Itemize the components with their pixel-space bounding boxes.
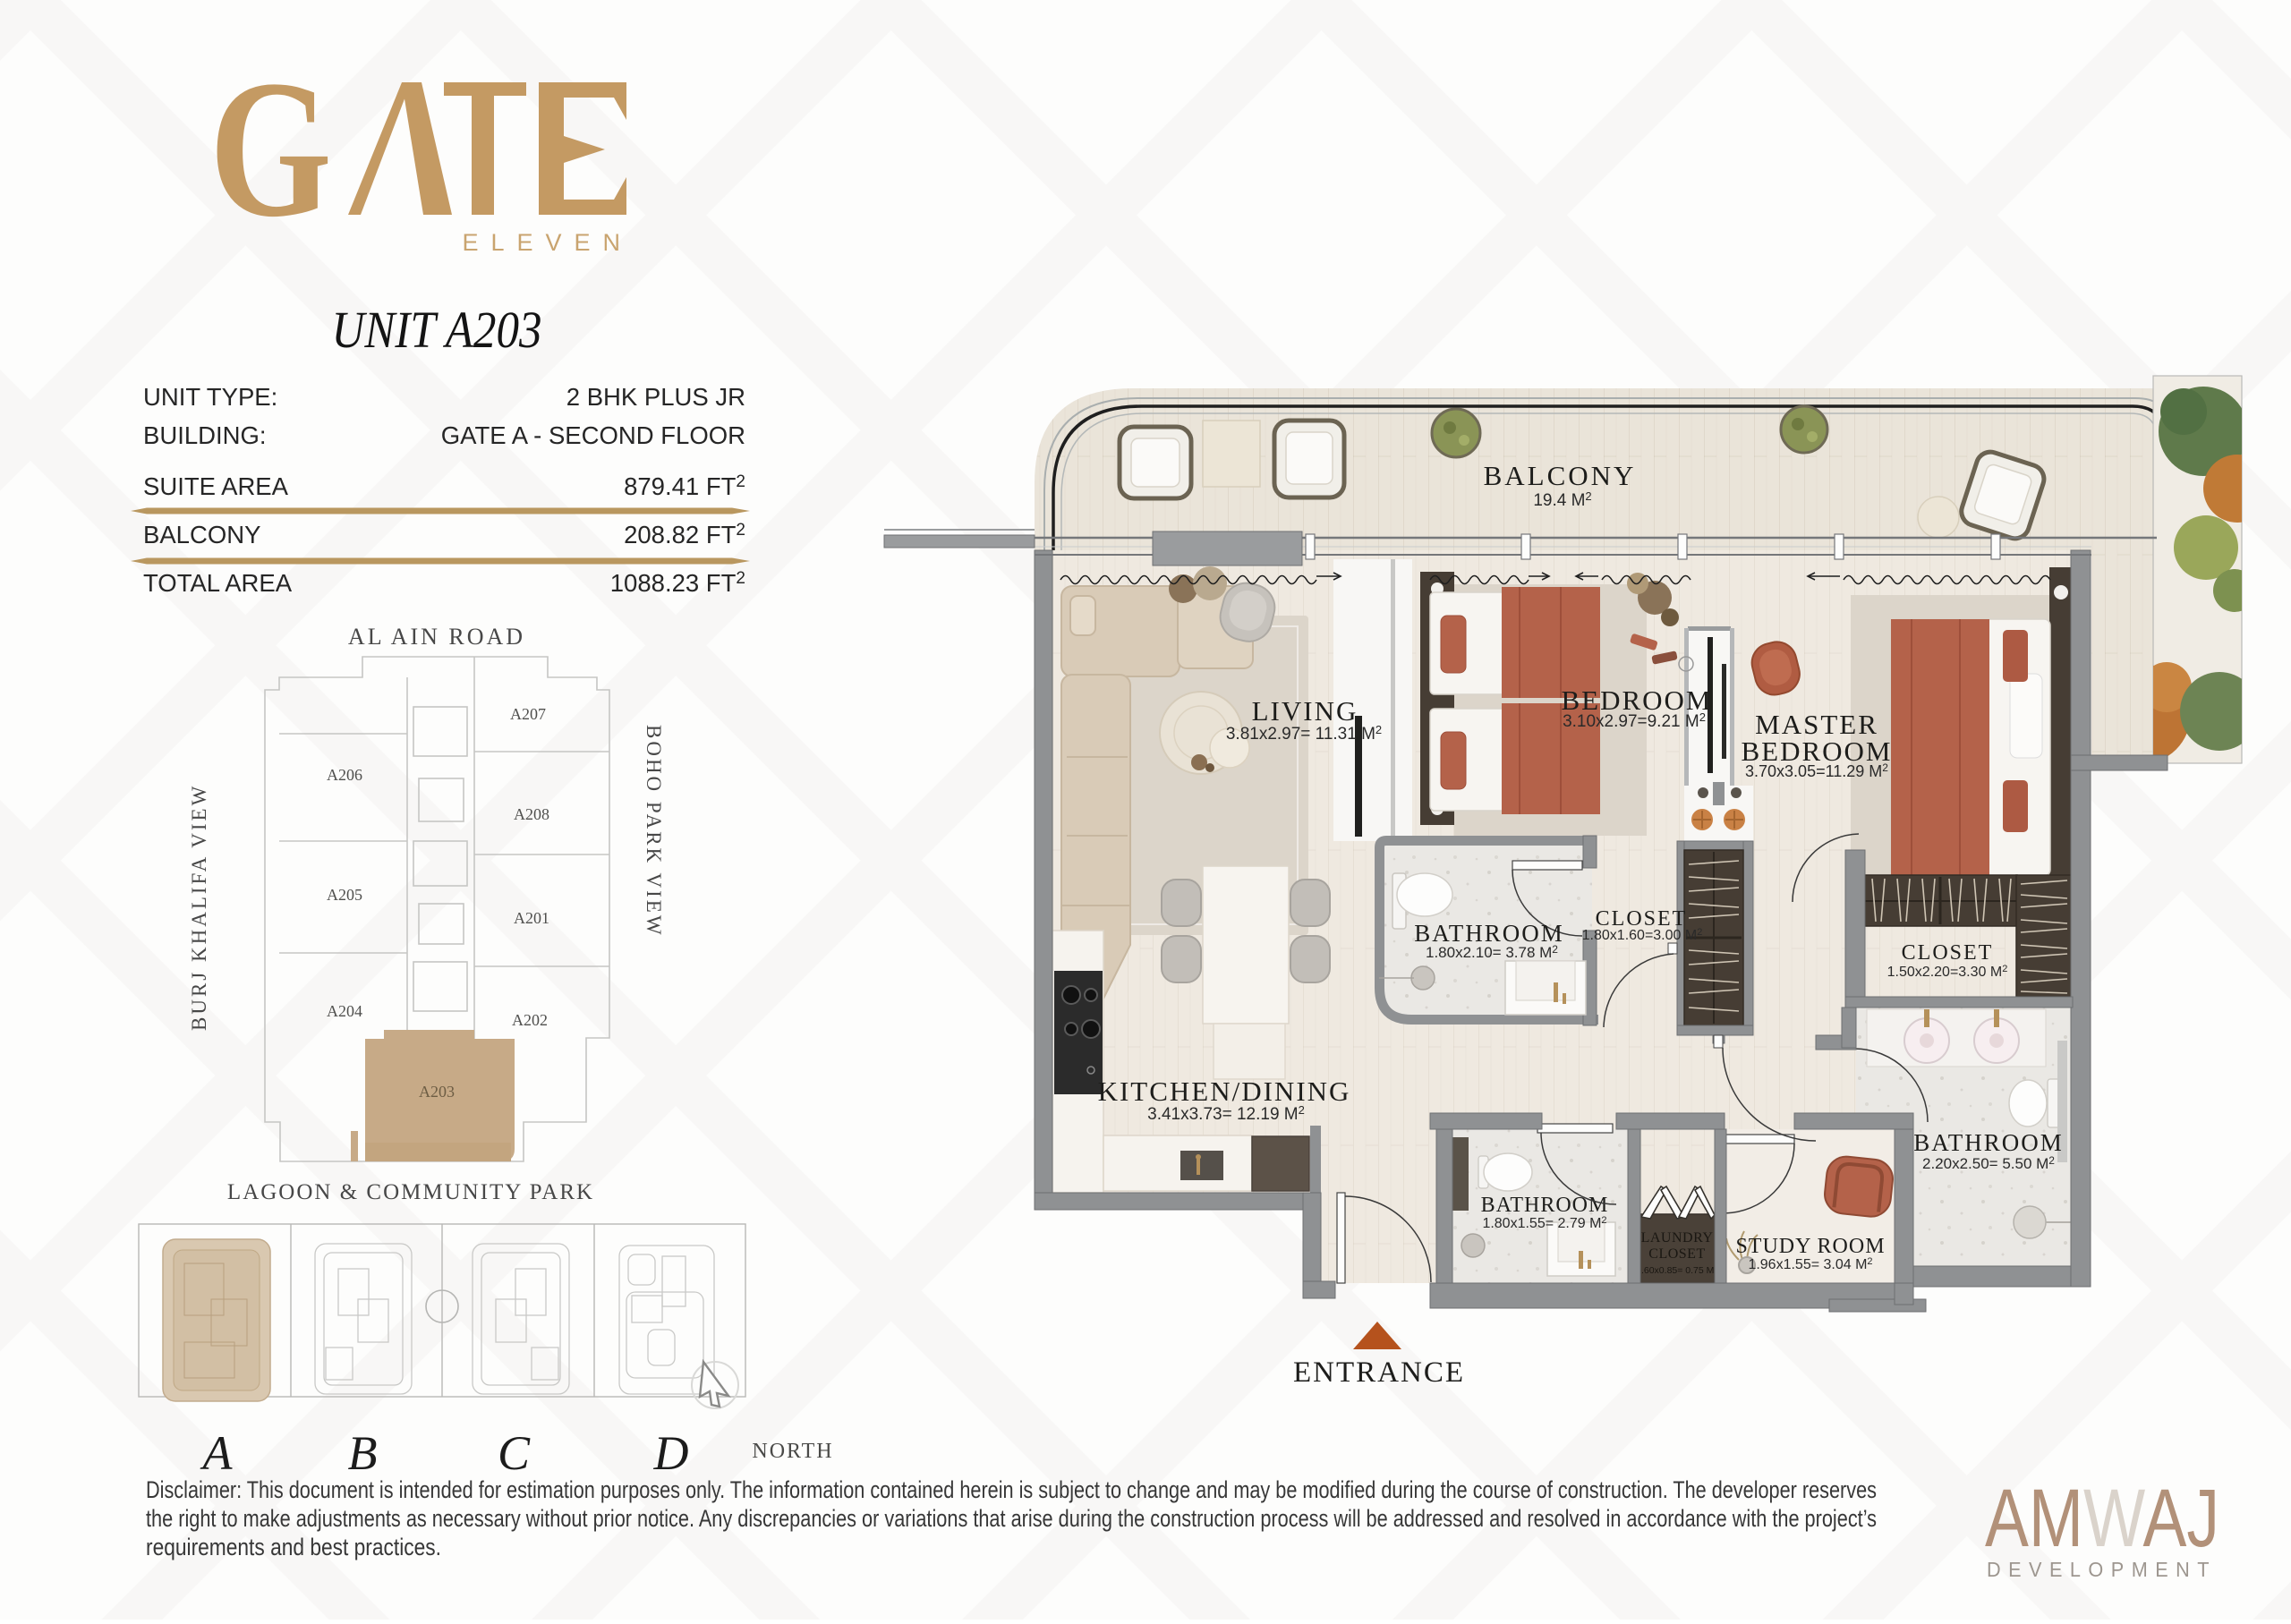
svg-text:DEVELOPMENT: DEVELOPMENT bbox=[1987, 1558, 2217, 1581]
svg-text:BOHO PARK VIEW: BOHO PARK VIEW bbox=[643, 725, 665, 938]
svg-text:C: C bbox=[498, 1426, 531, 1480]
svg-text:AL AIN ROAD: AL AIN ROAD bbox=[348, 624, 525, 650]
svg-text:1.80x1.55= 2.79 M2: 1.80x1.55= 2.79 M2 bbox=[1482, 1215, 1606, 1231]
svg-text:UNIT TYPE:: UNIT TYPE: bbox=[143, 383, 277, 411]
svg-text:BUILDING:: BUILDING: bbox=[143, 421, 267, 449]
svg-text:A205: A205 bbox=[327, 886, 362, 904]
svg-text:TOTAL AREA: TOTAL AREA bbox=[143, 569, 293, 597]
svg-text:ENTRANCE: ENTRANCE bbox=[1293, 1356, 1465, 1389]
svg-text:2 BHK PLUS JR: 2 BHK PLUS JR bbox=[566, 383, 745, 411]
svg-text:B: B bbox=[348, 1426, 378, 1480]
svg-text:BALCONY: BALCONY bbox=[1484, 460, 1637, 491]
svg-text:LAUNDRY: LAUNDRY bbox=[1641, 1230, 1714, 1246]
svg-text:A207: A207 bbox=[510, 705, 546, 723]
svg-text:KITCHEN/DINING: KITCHEN/DINING bbox=[1098, 1076, 1351, 1107]
svg-text:0.60x0.85= 0.75 M2: 0.60x0.85= 0.75 M2 bbox=[1636, 1263, 1718, 1276]
svg-text:879.41 FT2: 879.41 FT2 bbox=[624, 472, 745, 500]
svg-text:CLOSET: CLOSET bbox=[1648, 1246, 1705, 1262]
svg-text:BALCONY: BALCONY bbox=[143, 521, 260, 548]
svg-text:BATHROOM: BATHROOM bbox=[1414, 920, 1564, 947]
svg-text:1.80x2.10= 3.78 M2: 1.80x2.10= 3.78 M2 bbox=[1426, 943, 1558, 961]
svg-text:SUITE AREA: SUITE AREA bbox=[143, 472, 289, 500]
svg-text:19.4 M2: 19.4 M2 bbox=[1533, 489, 1591, 510]
svg-text:STUDY ROOM: STUDY ROOM bbox=[1735, 1235, 1885, 1258]
svg-text:1.80x1.60=3.00 M2: 1.80x1.60=3.00 M2 bbox=[1582, 927, 1703, 943]
svg-text:AMWAJ: AMWAJ bbox=[1985, 1473, 2219, 1564]
svg-text:NORTH: NORTH bbox=[752, 1440, 833, 1463]
svg-text:A: A bbox=[200, 1426, 234, 1480]
svg-text:2.20x2.50= 5.50 M2: 2.20x2.50= 5.50 M2 bbox=[1922, 1154, 2055, 1172]
svg-text:A208: A208 bbox=[514, 805, 549, 823]
svg-text:GATE A - SECOND FLOOR: GATE A - SECOND FLOOR bbox=[441, 421, 745, 449]
svg-text:ELEVEN: ELEVEN bbox=[462, 229, 633, 256]
svg-text:Disclaimer: This document is i: Disclaimer: This document is intended fo… bbox=[146, 1476, 1877, 1503]
svg-text:BATHROOM: BATHROOM bbox=[1481, 1194, 1609, 1217]
svg-text:3.41x3.73= 12.19 M2: 3.41x3.73= 12.19 M2 bbox=[1147, 1103, 1305, 1124]
svg-text:the right to make adjustments: the right to make adjustments as necessa… bbox=[146, 1505, 1877, 1532]
svg-text:A204: A204 bbox=[327, 1002, 362, 1020]
svg-text:G: G bbox=[209, 40, 332, 259]
svg-text:208.82 FT2: 208.82 FT2 bbox=[624, 521, 745, 548]
svg-text:BATHROOM: BATHROOM bbox=[1913, 1129, 2064, 1156]
svg-text:A202: A202 bbox=[512, 1011, 548, 1029]
svg-text:LIVING: LIVING bbox=[1252, 695, 1358, 727]
svg-text:A203: A203 bbox=[419, 1083, 455, 1101]
svg-text:UNIT A203: UNIT A203 bbox=[332, 301, 542, 359]
svg-text:3.70x3.05=11.29 M2: 3.70x3.05=11.29 M2 bbox=[1745, 761, 1888, 780]
svg-text:3.10x2.97=9.21 M2: 3.10x2.97=9.21 M2 bbox=[1563, 710, 1706, 731]
svg-text:A201: A201 bbox=[514, 909, 549, 927]
svg-text:BURJ KHALIFA VIEW: BURJ KHALIFA VIEW bbox=[188, 784, 210, 1031]
svg-text:requirements and best practice: requirements and best practices. bbox=[146, 1534, 441, 1560]
svg-text:BEDROOM: BEDROOM bbox=[1561, 684, 1712, 716]
svg-text:LAGOON & COMMUNITY PARK: LAGOON & COMMUNITY PARK bbox=[227, 1180, 594, 1204]
svg-text:1.50x2.20=3.30 M2: 1.50x2.20=3.30 M2 bbox=[1887, 964, 2008, 980]
svg-text:D: D bbox=[653, 1426, 689, 1480]
svg-text:A206: A206 bbox=[327, 766, 362, 784]
svg-text:CLOSET: CLOSET bbox=[1902, 941, 1994, 965]
svg-text:1088.23 FT2: 1088.23 FT2 bbox=[610, 569, 745, 597]
svg-text:1.96x1.55= 3.04 M2: 1.96x1.55= 3.04 M2 bbox=[1748, 1256, 1872, 1272]
svg-text:3.81x2.97= 11.31 M2: 3.81x2.97= 11.31 M2 bbox=[1226, 723, 1382, 744]
